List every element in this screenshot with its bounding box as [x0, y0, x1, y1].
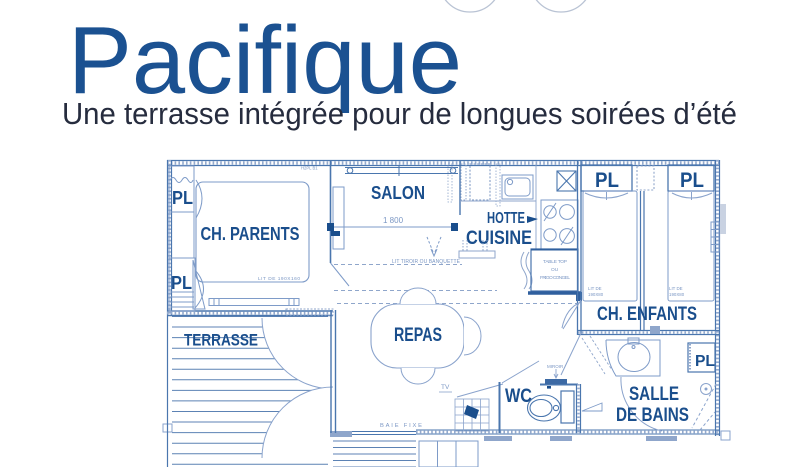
- svg-text:Une terrasse intégrée pour de: Une terrasse intégrée pour de longues so…: [62, 96, 737, 131]
- svg-text:PL: PL: [595, 169, 619, 192]
- svg-text:LIT DE 190X160: LIT DE 190X160: [258, 276, 300, 282]
- svg-text:PL: PL: [172, 188, 193, 208]
- svg-text:BAIE FIXE: BAIE FIXE: [380, 423, 422, 429]
- svg-text:MIROIR: MIROIR: [547, 364, 564, 369]
- svg-text:SALON: SALON: [371, 183, 425, 203]
- svg-text:TERRASSE: TERRASSE: [184, 332, 258, 350]
- svg-text:190X80: 190X80: [588, 292, 604, 297]
- svg-text:PL: PL: [171, 273, 192, 293]
- svg-text:190X80: 190X80: [669, 292, 685, 297]
- svg-text:1 800: 1 800: [383, 216, 404, 225]
- svg-text:TV: TV: [441, 384, 450, 391]
- svg-text:HOTTE: HOTTE: [487, 210, 525, 227]
- svg-text:H2PL B1: H2PL B1: [301, 166, 318, 171]
- svg-text:TABLE TOP: TABLE TOP: [543, 259, 567, 265]
- svg-text:LIT DE: LIT DE: [588, 286, 602, 291]
- svg-text:OU: OU: [551, 267, 559, 273]
- svg-text:CUISINE: CUISINE: [466, 227, 532, 249]
- svg-text:PL: PL: [695, 353, 715, 370]
- svg-text:DE BAINS: DE BAINS: [616, 405, 689, 426]
- svg-text:PL: PL: [680, 169, 704, 192]
- svg-text:FRIGO CONGEL: FRIGO CONGEL: [540, 275, 570, 281]
- svg-text:SALLE: SALLE: [629, 384, 679, 405]
- svg-text:CH. ENFANTS: CH. ENFANTS: [597, 304, 697, 325]
- svg-text:REPAS: REPAS: [394, 325, 442, 346]
- svg-text:CH. PARENTS: CH. PARENTS: [201, 223, 300, 244]
- svg-text:LIT DE: LIT DE: [669, 286, 683, 291]
